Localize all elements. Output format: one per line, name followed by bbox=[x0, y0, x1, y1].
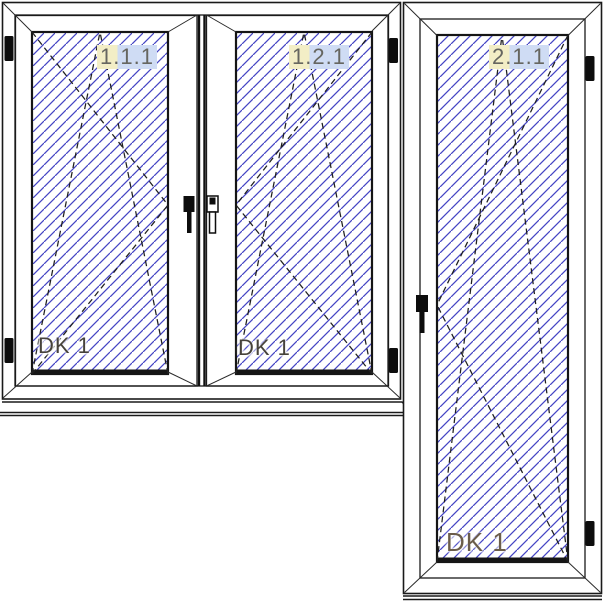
middle-sash-glass[interactable] bbox=[236, 32, 372, 374]
hinge-icon bbox=[586, 521, 595, 546]
window-drawing bbox=[0, 0, 604, 604]
balcony-door-block[interactable] bbox=[403, 3, 602, 600]
hinge-icon bbox=[586, 56, 595, 81]
door-glass[interactable] bbox=[437, 35, 568, 562]
opening-type-label-middle-sash[interactable]: DK 1 bbox=[238, 336, 291, 360]
left-sash-glass[interactable] bbox=[32, 32, 168, 374]
opening-type-label-door[interactable]: DK 1 bbox=[446, 528, 508, 556]
position-label-door[interactable]: 2.1.1 bbox=[489, 45, 549, 69]
window-design-canvas: 1.1.1 1.2.1 2.1.1 DK 1 DK 1 DK 1 bbox=[0, 0, 604, 604]
hinge-icon bbox=[5, 36, 14, 61]
opening-type-label-left-sash[interactable]: DK 1 bbox=[38, 334, 91, 358]
position-label-left-sash[interactable]: 1.1.1 bbox=[97, 45, 157, 69]
hinge-icon bbox=[5, 338, 14, 363]
position-label-middle-sash[interactable]: 1.2.1 bbox=[289, 45, 349, 69]
door-threshold bbox=[403, 596, 602, 600]
hinge-icon bbox=[389, 348, 398, 373]
window-sill bbox=[0, 402, 415, 416]
hinge-icon bbox=[389, 38, 398, 63]
